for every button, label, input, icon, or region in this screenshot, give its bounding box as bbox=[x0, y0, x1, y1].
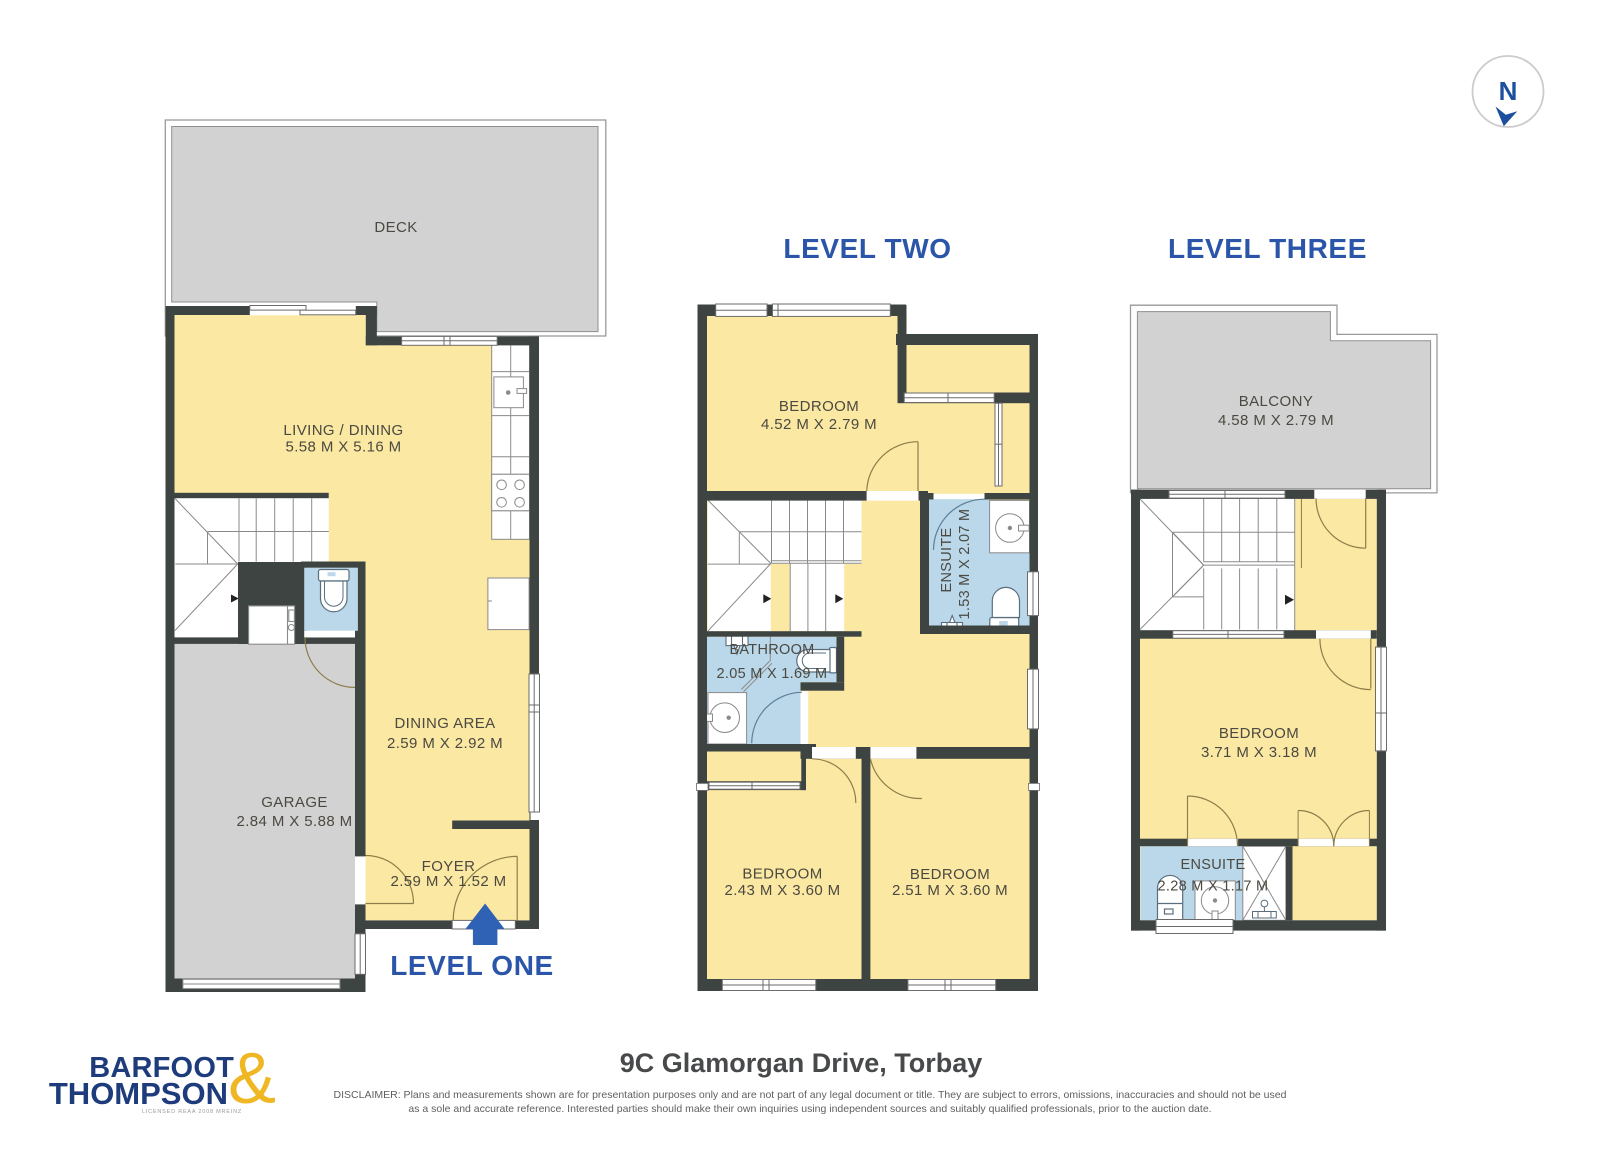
svg-text:&: & bbox=[228, 1039, 276, 1119]
svg-text:ENSUITE: ENSUITE bbox=[1181, 857, 1246, 873]
svg-text:3.71 M X 3.18 M: 3.71 M X 3.18 M bbox=[1201, 744, 1317, 761]
svg-text:2.43 M X 3.60 M: 2.43 M X 3.60 M bbox=[724, 882, 840, 899]
svg-text:BEDROOM: BEDROOM bbox=[910, 866, 990, 883]
svg-text:2.05 M X 1.69 M: 2.05 M X 1.69 M bbox=[717, 666, 828, 682]
svg-text:2.59 M X 1.52 M: 2.59 M X 1.52 M bbox=[390, 873, 506, 890]
svg-text:ENSUITE: ENSUITE bbox=[939, 528, 955, 593]
svg-text:LEVEL ONE: LEVEL ONE bbox=[390, 950, 554, 981]
svg-text:BALCONY: BALCONY bbox=[1239, 393, 1314, 410]
svg-text:9C Glamorgan Drive, Torbay: 9C Glamorgan Drive, Torbay bbox=[620, 1048, 983, 1078]
svg-text:BEDROOM: BEDROOM bbox=[1219, 725, 1299, 742]
svg-text:as a sole and accurate referen: as a sole and accurate reference. Intere… bbox=[408, 1103, 1211, 1115]
svg-text:2.84 M X 5.88 M: 2.84 M X 5.88 M bbox=[236, 813, 352, 830]
svg-text:LEVEL THREE: LEVEL THREE bbox=[1168, 233, 1367, 264]
svg-text:N: N bbox=[1499, 76, 1518, 106]
svg-text:1.53 M X 2.07 M: 1.53 M X 2.07 M bbox=[957, 509, 973, 620]
svg-text:BEDROOM: BEDROOM bbox=[742, 866, 822, 883]
svg-text:DISCLAIMER: Plans and measurem: DISCLAIMER: Plans and measurements shown… bbox=[334, 1089, 1287, 1101]
svg-text:4.52 M X 2.79 M: 4.52 M X 2.79 M bbox=[761, 416, 877, 433]
svg-text:BEDROOM: BEDROOM bbox=[779, 398, 859, 415]
svg-text:2.28 M X 1.17 M: 2.28 M X 1.17 M bbox=[1158, 879, 1269, 895]
svg-text:LIVING / DINING: LIVING / DINING bbox=[283, 422, 403, 439]
svg-text:2.51 M X 3.60 M: 2.51 M X 3.60 M bbox=[892, 882, 1008, 899]
svg-text:2.59 M X 2.92 M: 2.59 M X 2.92 M bbox=[387, 735, 503, 752]
svg-text:LEVEL TWO: LEVEL TWO bbox=[783, 233, 951, 264]
svg-text:LICENSED REAA 2008 MREINZ: LICENSED REAA 2008 MREINZ bbox=[142, 1109, 242, 1115]
svg-text:DINING AREA: DINING AREA bbox=[394, 715, 495, 732]
svg-text:DECK: DECK bbox=[374, 219, 417, 236]
svg-text:BATHROOM: BATHROOM bbox=[729, 642, 814, 658]
svg-text:GARAGE: GARAGE bbox=[261, 794, 328, 811]
svg-text:4.58 M X 2.79 M: 4.58 M X 2.79 M bbox=[1218, 412, 1334, 429]
svg-text:5.58 M X 5.16 M: 5.58 M X 5.16 M bbox=[285, 439, 401, 456]
svg-text:THOMPSON: THOMPSON bbox=[49, 1076, 228, 1111]
